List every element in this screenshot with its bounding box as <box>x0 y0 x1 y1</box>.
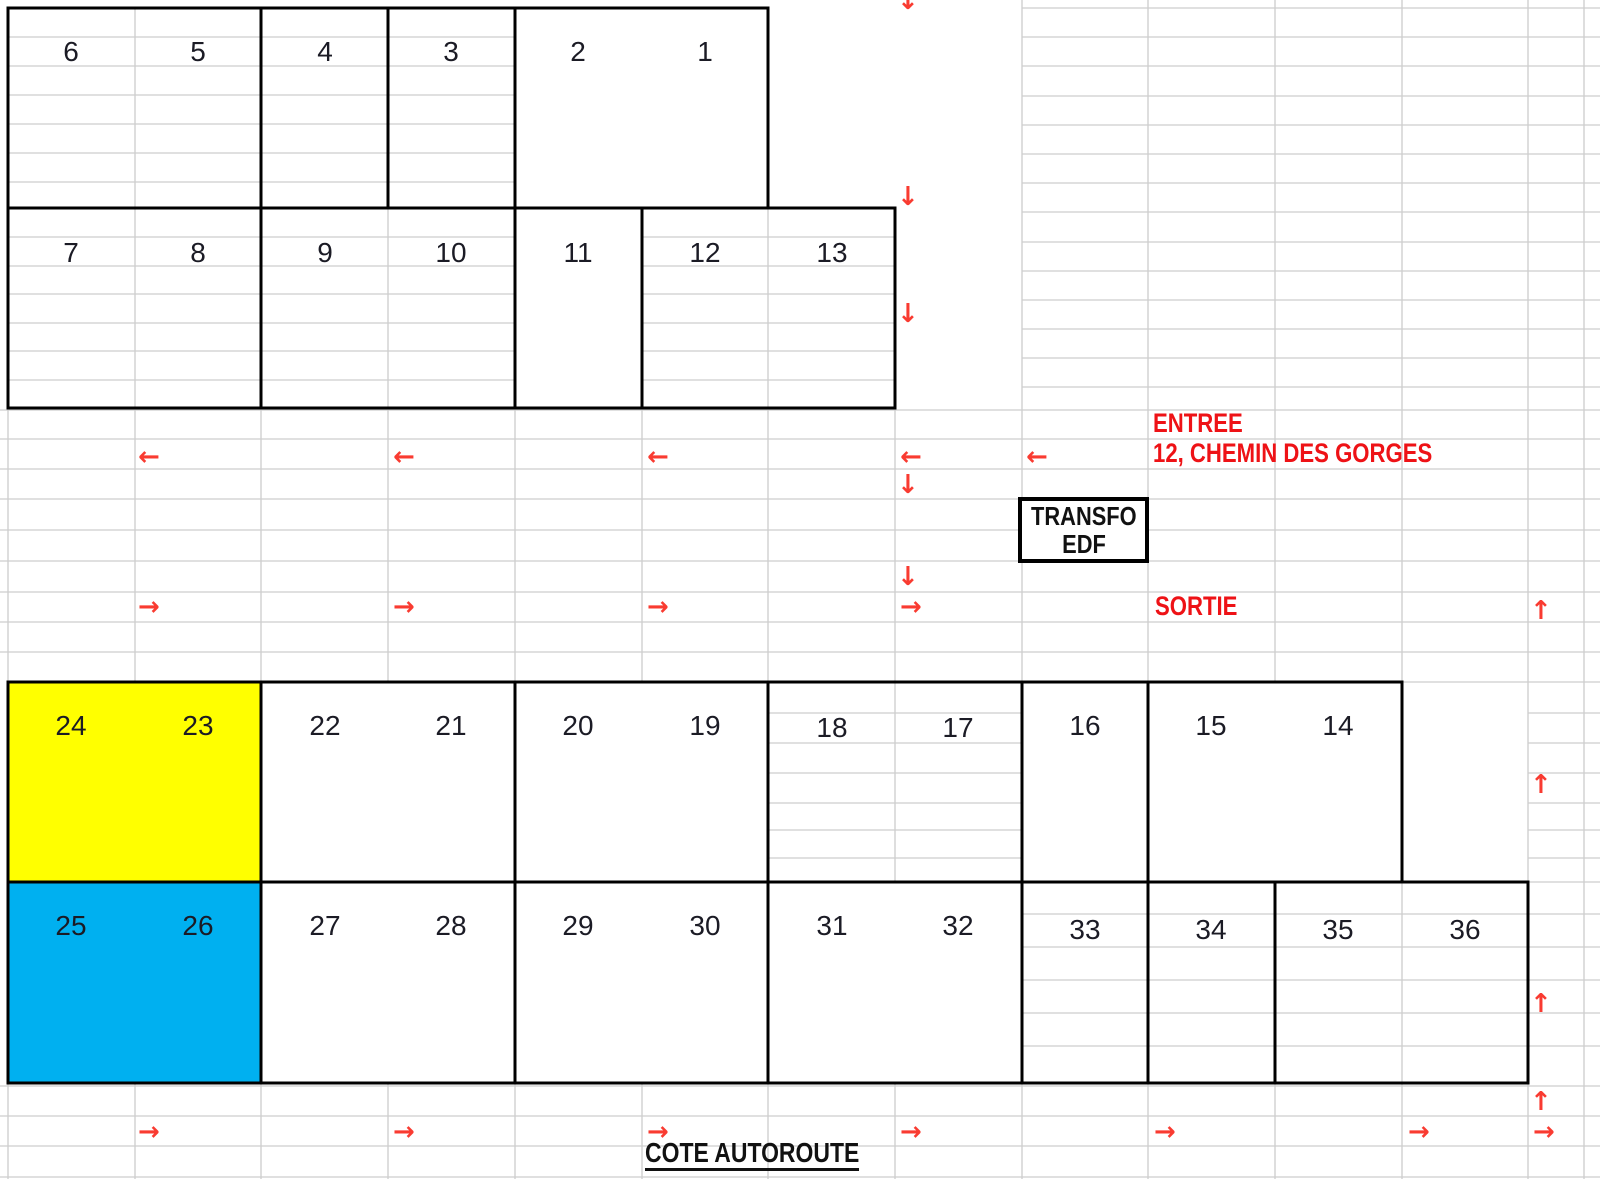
arrow-right-icon: → <box>1408 1119 1430 1145</box>
plot-block-b_33 <box>1022 882 1148 1083</box>
arrow-up-icon: ↑ <box>1530 598 1552 624</box>
plot-block-b_27_28 <box>261 882 515 1083</box>
parcel-number-24: 24 <box>55 712 86 740</box>
plot-block-b_2_1 <box>515 8 768 208</box>
arrow-left-icon: ← <box>138 444 160 470</box>
parcel-number-6: 6 <box>63 38 79 66</box>
parcel-number-14: 14 <box>1322 712 1353 740</box>
parcel-number-8: 8 <box>190 239 206 267</box>
parcel-number-4: 4 <box>317 38 333 66</box>
arrow-left-icon: ← <box>900 444 922 470</box>
arrow-right-icon: → <box>1533 1119 1555 1145</box>
arrow-right-icon: → <box>647 594 669 620</box>
arrow-down-icon: ↓ <box>897 301 919 327</box>
arrow-up-icon: ↑ <box>1530 1089 1552 1115</box>
plot-block-b_34 <box>1148 882 1275 1083</box>
transfo-edf-box: TRANSFO EDF <box>1018 497 1149 563</box>
arrow-right-icon: → <box>900 1119 922 1145</box>
parcel-number-32: 32 <box>942 912 973 940</box>
parcel-number-12: 12 <box>689 239 720 267</box>
site-plan-sheet: 6543217891011121324232221201918171615142… <box>0 0 1600 1179</box>
parcel-number-9: 9 <box>317 239 333 267</box>
arrow-down-icon: ↓ <box>897 184 919 210</box>
parcel-number-33: 33 <box>1069 916 1100 944</box>
parcel-number-26: 26 <box>182 912 213 940</box>
arrow-right-icon: → <box>393 594 415 620</box>
parcel-number-20: 20 <box>562 712 593 740</box>
parcel-number-34: 34 <box>1195 916 1226 944</box>
plot-block-b_20_19 <box>515 682 768 882</box>
parcel-number-36: 36 <box>1449 916 1480 944</box>
arrow-down-icon: ↓ <box>897 472 919 498</box>
address-label: 12, CHEMIN DES GORGES <box>1153 439 1432 468</box>
arrow-left-icon: ← <box>1026 444 1048 470</box>
parcel-number-30: 30 <box>689 912 720 940</box>
arrow-up-icon: ↑ <box>1530 991 1552 1017</box>
parcel-number-27: 27 <box>309 912 340 940</box>
parcel-number-25: 25 <box>55 912 86 940</box>
plot-fill-b_24_23 <box>8 682 261 882</box>
parcel-number-21: 21 <box>435 712 466 740</box>
arrow-down-icon: ↓ <box>897 0 919 14</box>
plot-block-b_31_32 <box>768 882 1022 1083</box>
plot-fill-b_25_26 <box>8 882 261 1083</box>
parcel-number-35: 35 <box>1322 916 1353 944</box>
parcel-number-5: 5 <box>190 38 206 66</box>
arrow-right-icon: → <box>138 594 160 620</box>
parcel-number-7: 7 <box>63 239 79 267</box>
arrow-left-icon: ← <box>647 444 669 470</box>
parcel-number-2: 2 <box>570 38 586 66</box>
transfo-label-line2: EDF <box>1062 530 1106 558</box>
parcel-number-22: 22 <box>309 712 340 740</box>
parcel-number-16: 16 <box>1069 712 1100 740</box>
arrow-down-icon: ↓ <box>897 564 919 590</box>
arrow-right-icon: → <box>393 1119 415 1145</box>
parcel-number-17: 17 <box>942 714 973 742</box>
plan-grid-svg <box>0 0 1600 1179</box>
parcel-number-15: 15 <box>1195 712 1226 740</box>
parcel-number-23: 23 <box>182 712 213 740</box>
parcel-number-13: 13 <box>816 239 847 267</box>
arrow-right-icon: → <box>1154 1119 1176 1145</box>
parcel-number-19: 19 <box>689 712 720 740</box>
sortie-label: SORTIE <box>1155 592 1237 621</box>
plot-block-b_22_21 <box>261 682 515 882</box>
parcel-number-31: 31 <box>816 912 847 940</box>
arrow-up-icon: ↑ <box>1530 772 1552 798</box>
parcel-number-10: 10 <box>435 239 466 267</box>
plot-block-b_15_14 <box>1148 682 1402 882</box>
entree-label: ENTREE <box>1153 409 1243 438</box>
arrow-right-icon: → <box>900 594 922 620</box>
parcel-number-1: 1 <box>697 38 713 66</box>
parcel-number-11: 11 <box>563 239 592 267</box>
arrow-left-icon: ← <box>393 444 415 470</box>
cote-autoroute-label: COTE AUTOROUTE <box>645 1139 859 1171</box>
parcel-number-28: 28 <box>435 912 466 940</box>
parcel-number-3: 3 <box>443 38 459 66</box>
parcel-number-18: 18 <box>816 714 847 742</box>
parcel-number-29: 29 <box>562 912 593 940</box>
plot-block-b_29_30 <box>515 882 768 1083</box>
transfo-label-line1: TRANSFO <box>1031 502 1137 530</box>
arrow-right-icon: → <box>138 1119 160 1145</box>
